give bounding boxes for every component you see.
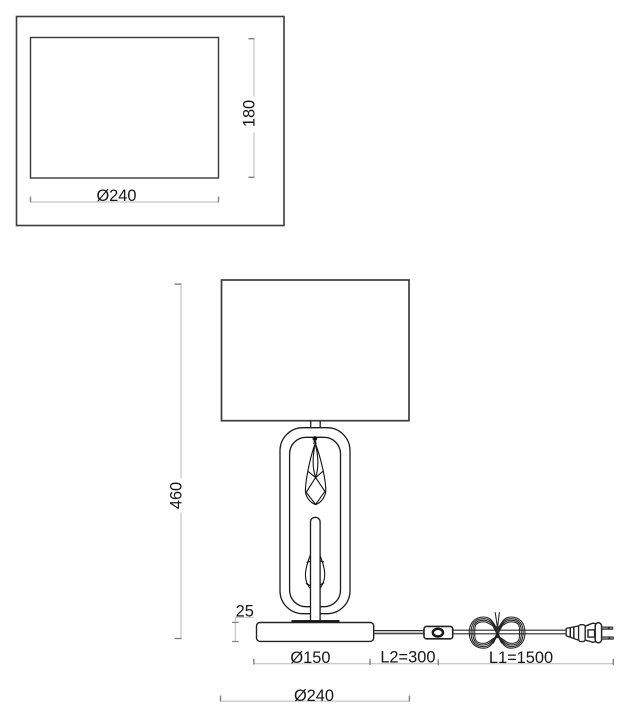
svg-text:180: 180: [240, 100, 258, 127]
svg-text:Ø240: Ø240: [96, 187, 136, 205]
svg-text:Ø150: Ø150: [290, 649, 330, 667]
svg-text:460: 460: [167, 482, 185, 509]
svg-text:Ø240: Ø240: [294, 687, 334, 705]
svg-text:25: 25: [236, 602, 254, 620]
svg-text:L1=1500: L1=1500: [489, 649, 553, 667]
svg-text:L2=300: L2=300: [380, 648, 435, 666]
